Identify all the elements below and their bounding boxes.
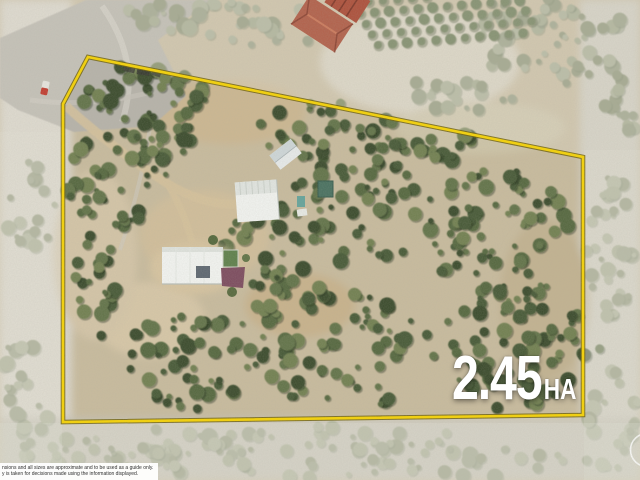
disclaimer-line-2: y is taken for decisions made using the … xyxy=(2,471,156,477)
real-estate-aerial-photo: 2.45HA nsions and all sizes are approxim… xyxy=(0,0,640,480)
area-label: 2.45HA xyxy=(452,348,576,410)
area-value: 2.45 xyxy=(452,348,541,410)
disclaimer-strip: nsions and all sizes are approximate and… xyxy=(0,463,158,480)
area-unit: HA xyxy=(544,376,577,405)
